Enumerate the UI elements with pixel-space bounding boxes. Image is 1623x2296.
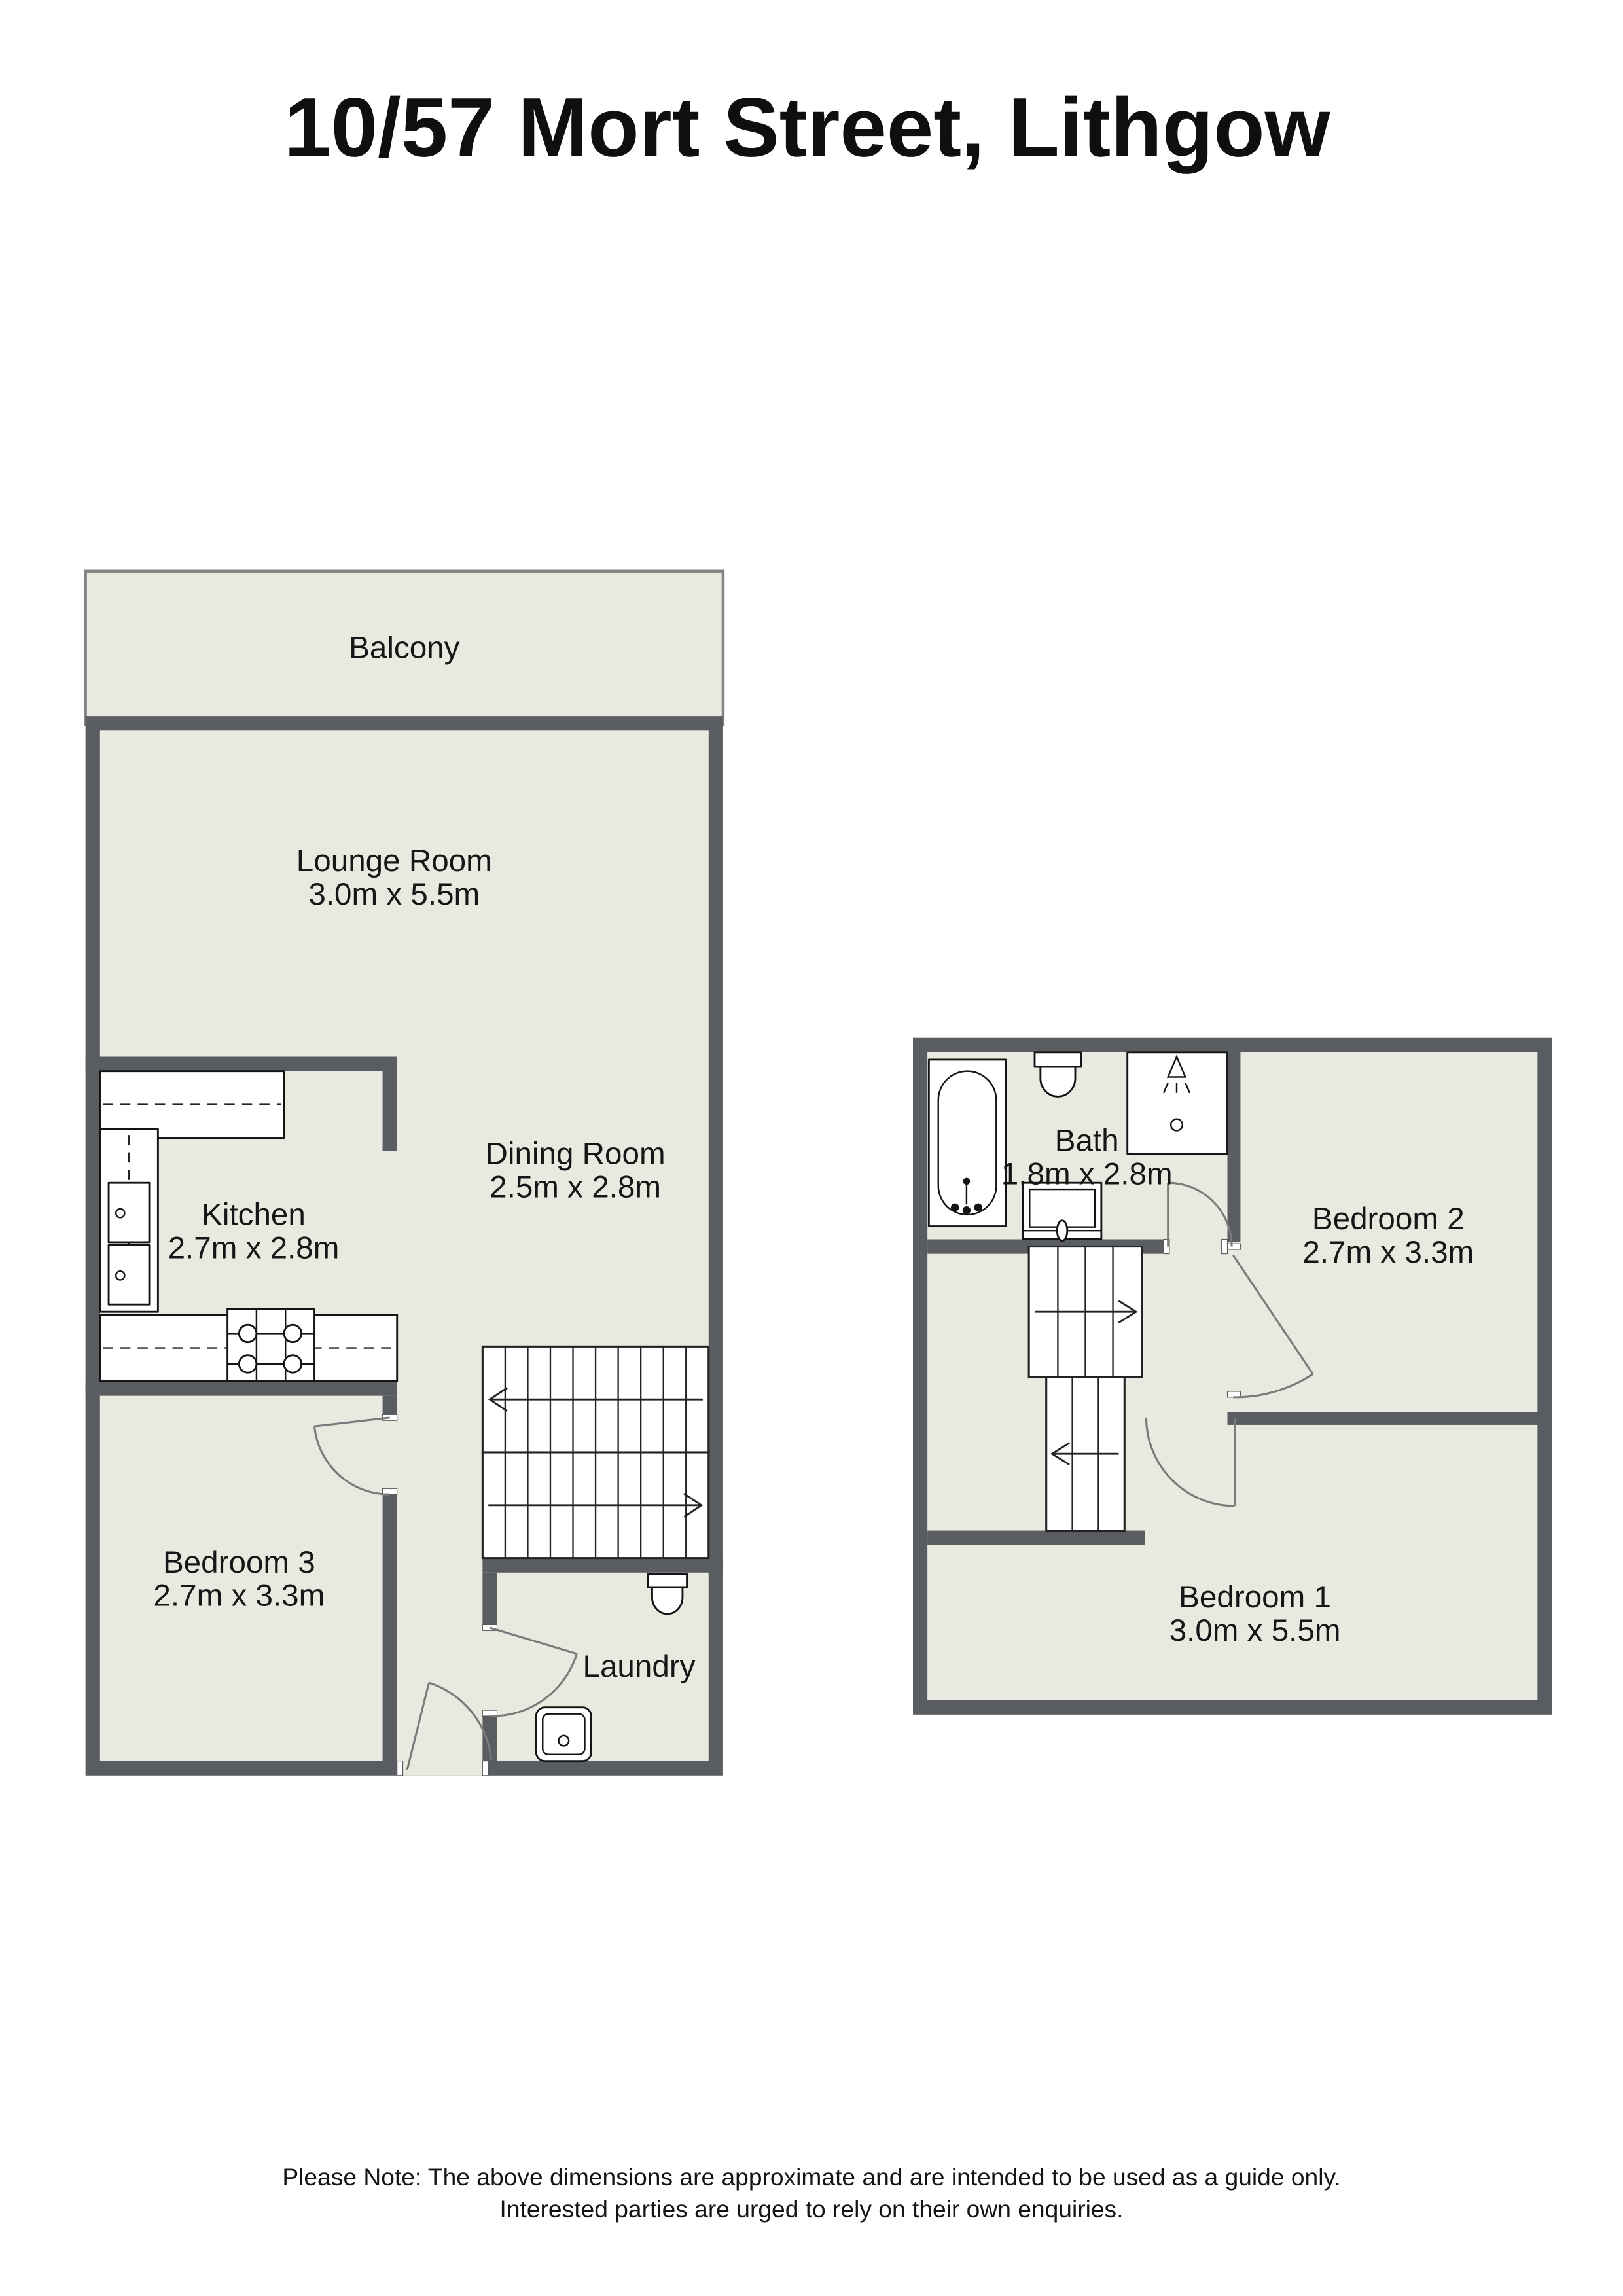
laundry-sink xyxy=(536,1708,591,1761)
entry-opening xyxy=(403,1761,483,1776)
shower xyxy=(1128,1052,1228,1154)
staircase-upper xyxy=(1029,1247,1142,1531)
kitchen-tall-unit xyxy=(100,1129,158,1312)
disclaimer-note: Please Note: The above dimensions are ap… xyxy=(282,2163,1340,2223)
ground-floor-plan: Balcony xyxy=(86,571,723,1776)
balcony-label: Balcony xyxy=(349,631,460,666)
bedroom2-dims: 2.7m x 3.3m xyxy=(1302,1235,1474,1270)
bedroom1-label: Bedroom 1 xyxy=(1179,1580,1331,1615)
kitchen-label: Kitchen xyxy=(202,1197,306,1232)
bedroom2-label: Bedroom 2 xyxy=(1312,1202,1465,1236)
bedroom3-label: Bedroom 3 xyxy=(163,1545,315,1580)
kitchen-bench-top xyxy=(100,1071,284,1138)
bath-dims: 1.8m x 2.8m xyxy=(1001,1157,1173,1191)
dining-label: Dining Room xyxy=(486,1136,666,1171)
floorplan-canvas: 10/57 Mort Street, Lithgow Balcony xyxy=(0,0,1623,2296)
staircase-ground xyxy=(482,1346,708,1558)
kitchen-dims: 2.7m x 2.8m xyxy=(168,1230,340,1265)
note-line-1: Please Note: The above dimensions are ap… xyxy=(282,2163,1340,2191)
stove-cooktop xyxy=(228,1309,315,1382)
lounge-label: Lounge Room xyxy=(296,844,492,878)
note-line-2: Interested parties are urged to rely on … xyxy=(500,2195,1124,2223)
dining-dims: 2.5m x 2.8m xyxy=(490,1170,661,1204)
laundry-label: Laundry xyxy=(582,1649,695,1684)
bedroom3-dims: 2.7m x 3.3m xyxy=(153,1579,325,1613)
bedroom1-dims: 3.0m x 5.5m xyxy=(1169,1613,1341,1648)
page-title: 10/57 Mort Street, Lithgow xyxy=(284,81,1330,175)
lounge-dims: 3.0m x 5.5m xyxy=(308,877,480,912)
floorplan-page: 10/57 Mort Street, Lithgow Balcony xyxy=(0,0,1623,2296)
upper-floor-plan: Bath 1.8m x 2.8m Bedroom 2 2.7m x 3.3m B… xyxy=(913,1038,1552,1715)
bath-label: Bath xyxy=(1055,1123,1119,1158)
vanity-sink xyxy=(1023,1183,1101,1241)
bathtub xyxy=(929,1060,1005,1227)
